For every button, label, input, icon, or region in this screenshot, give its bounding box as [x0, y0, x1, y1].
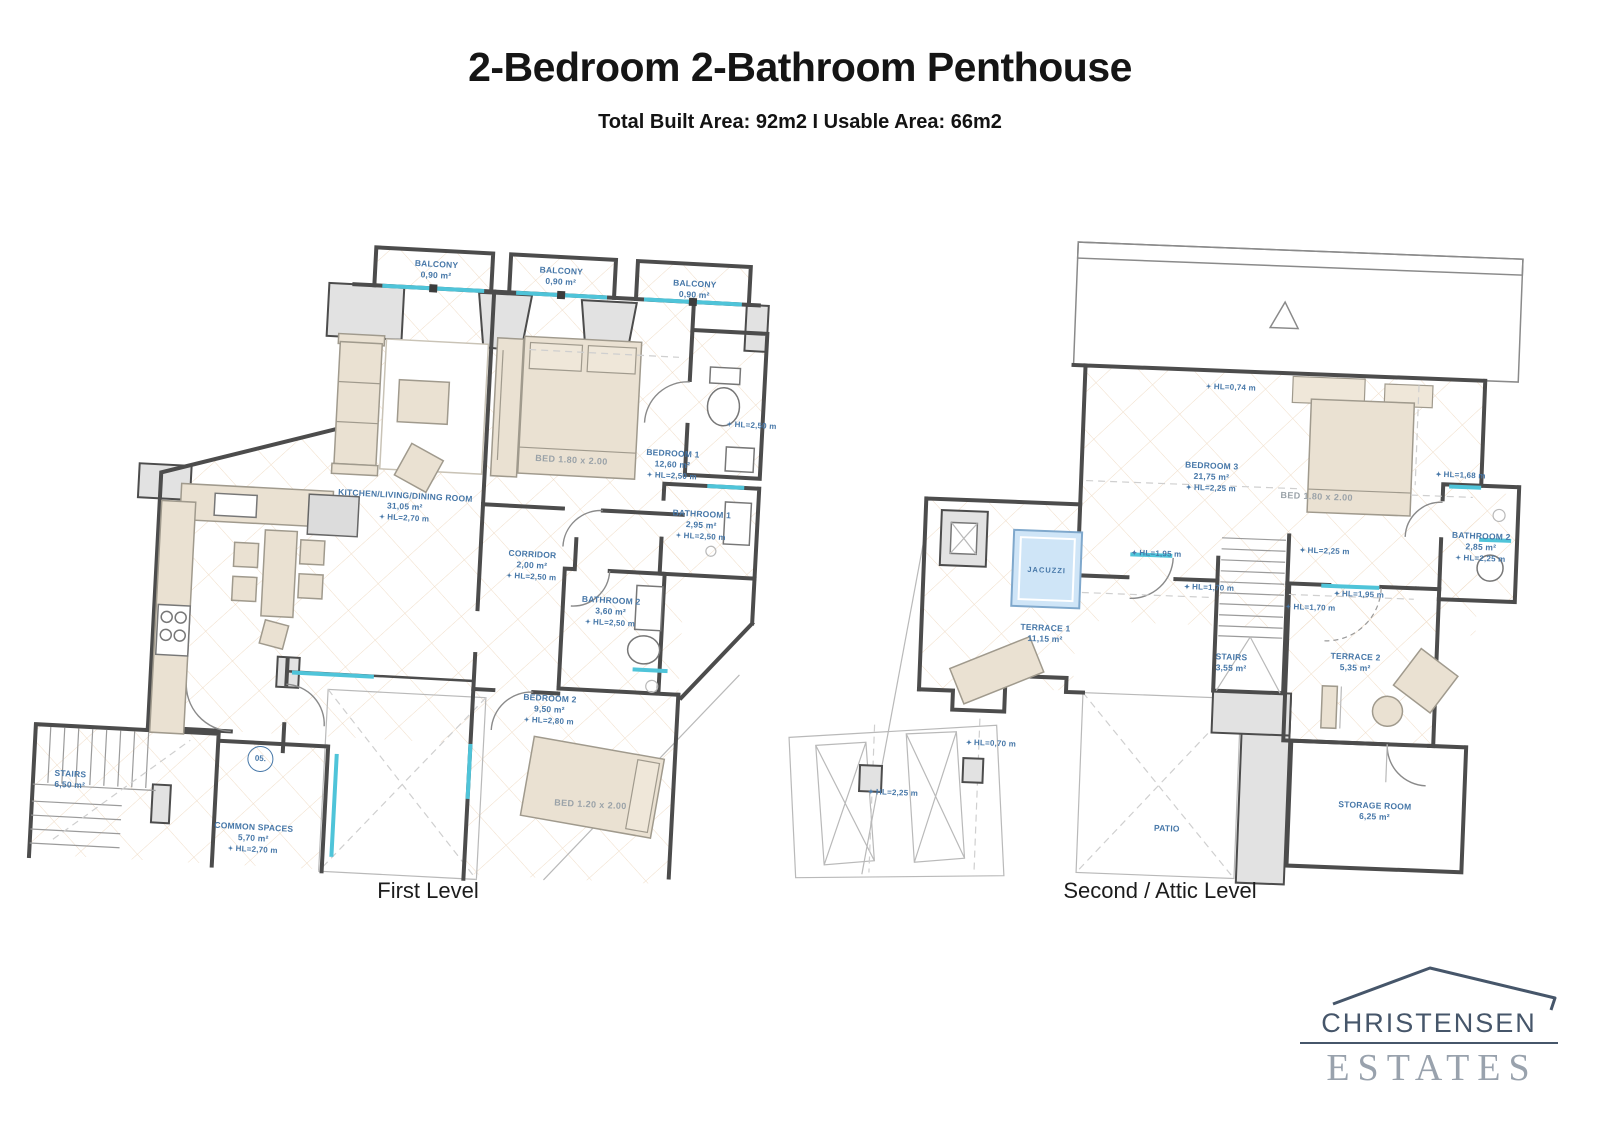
- height-annotation: ✦HL=2,25 m: [868, 787, 919, 800]
- page-subtitle: Total Built Area: 92m2 I Usable Area: 66…: [0, 111, 1600, 134]
- height-annotation: ✦HL=1,68 m: [1435, 470, 1486, 483]
- logo-estates: ESTATES: [1300, 1046, 1558, 1090]
- room-label-bedroom-1: BEDROOM 1 12,60 m² ✦HL=2,50 m: [645, 447, 700, 483]
- height-marker-icon: ✦: [1206, 384, 1212, 391]
- room-label-terrace-1: TERRACE 1 11,15 m²: [1020, 622, 1071, 647]
- room-label-balcony-3: BALCONY 0,90 m²: [672, 277, 717, 302]
- height-marker-icon: ✦: [524, 717, 530, 724]
- room-label-bedroom-2: BEDROOM 2 9,50 m² ✦HL=2,80 m: [522, 692, 577, 728]
- height-annotation: ✦HL=1,70 m: [1285, 602, 1336, 615]
- second-level-plan: ✦HL=0,74 m BEDROOM 3 21,75 m² ✦HL=2,25 m…: [766, 229, 1530, 897]
- jacuzzi-label: JACUZZI: [1027, 565, 1066, 575]
- logo-name: CHRISTENSEN: [1300, 1008, 1558, 1039]
- first-level-plan: BALCONY 0,90 m² BALCONY 0,90 m² BALCONY …: [24, 227, 776, 894]
- height-marker-icon: ✦: [1334, 591, 1340, 598]
- roof-hatch: [1074, 242, 1523, 382]
- room-label-corridor: CORRIDOR 2,00 m² ✦HL=2,50 m: [506, 548, 558, 584]
- room-label-attic-stairs: STAIRS 3,55 m²: [1215, 651, 1248, 675]
- room-label-kitchen: KITCHEN/LIVING/DINING ROOM 31,05 m² ✦HL=…: [337, 487, 473, 528]
- height-marker-icon: ✦: [227, 845, 233, 852]
- height-marker-icon: ✦: [585, 619, 591, 626]
- brand-logo: CHRISTENSEN ESTATES: [1300, 960, 1558, 1090]
- height-annotation: ✦HL=0,74 m: [1206, 382, 1257, 395]
- logo-roof-icon: [1300, 960, 1558, 1012]
- room-label-bathroom-2-attic: BATHROOM 2 2,85 m² ✦HL=2,25 m: [1451, 530, 1511, 566]
- height-marker-icon: ✦: [1285, 604, 1291, 611]
- room-label-balcony-2: BALCONY 0,90 m²: [539, 264, 584, 289]
- room-label-balcony-1: BALCONY 0,90 m²: [414, 258, 459, 283]
- height-marker-icon: ✦: [675, 532, 681, 539]
- height-marker-icon: ✦: [1184, 584, 1190, 591]
- height-marker-icon: ✦: [868, 789, 874, 796]
- room-label-stairs: STAIRS 6,50 m²: [54, 768, 87, 793]
- room-label-common-spaces: COMMON SPACES 5,70 m² ✦HL=2,70 m: [213, 820, 294, 858]
- second-level-caption: Second / Attic Level: [1063, 878, 1256, 904]
- height-annotation: ✦HL=0,70 m: [966, 738, 1017, 751]
- patio-label: PATIO: [1154, 823, 1180, 835]
- height-annotation: ✦HL=1,70 m: [1184, 582, 1235, 595]
- room-label-bedroom-3: BEDROOM 3 21,75 m² ✦HL=2,25 m: [1184, 459, 1239, 495]
- first-level-caption: First Level: [377, 878, 478, 904]
- height-marker-icon: ✦: [1186, 484, 1192, 491]
- height-marker-icon: ✦: [966, 740, 972, 747]
- height-annotation: ✦HL=2,25 m: [1299, 545, 1350, 558]
- height-annotation: ✦HL=1,95 m: [1131, 548, 1182, 561]
- height-marker-icon: ✦: [506, 573, 512, 580]
- chimney: [950, 522, 977, 554]
- floor-plan-sheet: 2-Bedroom 2-Bathroom Penthouse Total Bui…: [0, 0, 1600, 1131]
- height-marker-icon: ✦: [1435, 472, 1441, 479]
- height-marker-icon: ✦: [1455, 555, 1461, 562]
- room-label-terrace-2: TERRACE 2 5,35 m²: [1330, 651, 1381, 676]
- roof-vent-icon: [1270, 302, 1299, 329]
- height-marker-icon: ✦: [1299, 547, 1305, 554]
- height-marker-icon: ✦: [379, 514, 385, 521]
- height-marker-icon: ✦: [647, 472, 653, 479]
- height-annotation: ✦HL=1,95 m: [1334, 589, 1385, 602]
- header: 2-Bedroom 2-Bathroom Penthouse Total Bui…: [0, 44, 1600, 134]
- room-label-bathroom-2: BATHROOM 2 3,60 m² ✦HL=2,50 m: [580, 594, 640, 631]
- room-label-bathroom-1: BATHROOM 1 2,95 m² ✦HL=2,50 m: [671, 507, 731, 544]
- first-level-drawing: [24, 227, 776, 894]
- height-marker-icon: ✦: [1131, 550, 1137, 557]
- height-marker-icon: ✦: [726, 422, 732, 429]
- logo-divider: [1300, 1042, 1558, 1044]
- page-title: 2-Bedroom 2-Bathroom Penthouse: [0, 44, 1600, 91]
- room-label-storage: STORAGE ROOM 6,25 m²: [1338, 799, 1412, 825]
